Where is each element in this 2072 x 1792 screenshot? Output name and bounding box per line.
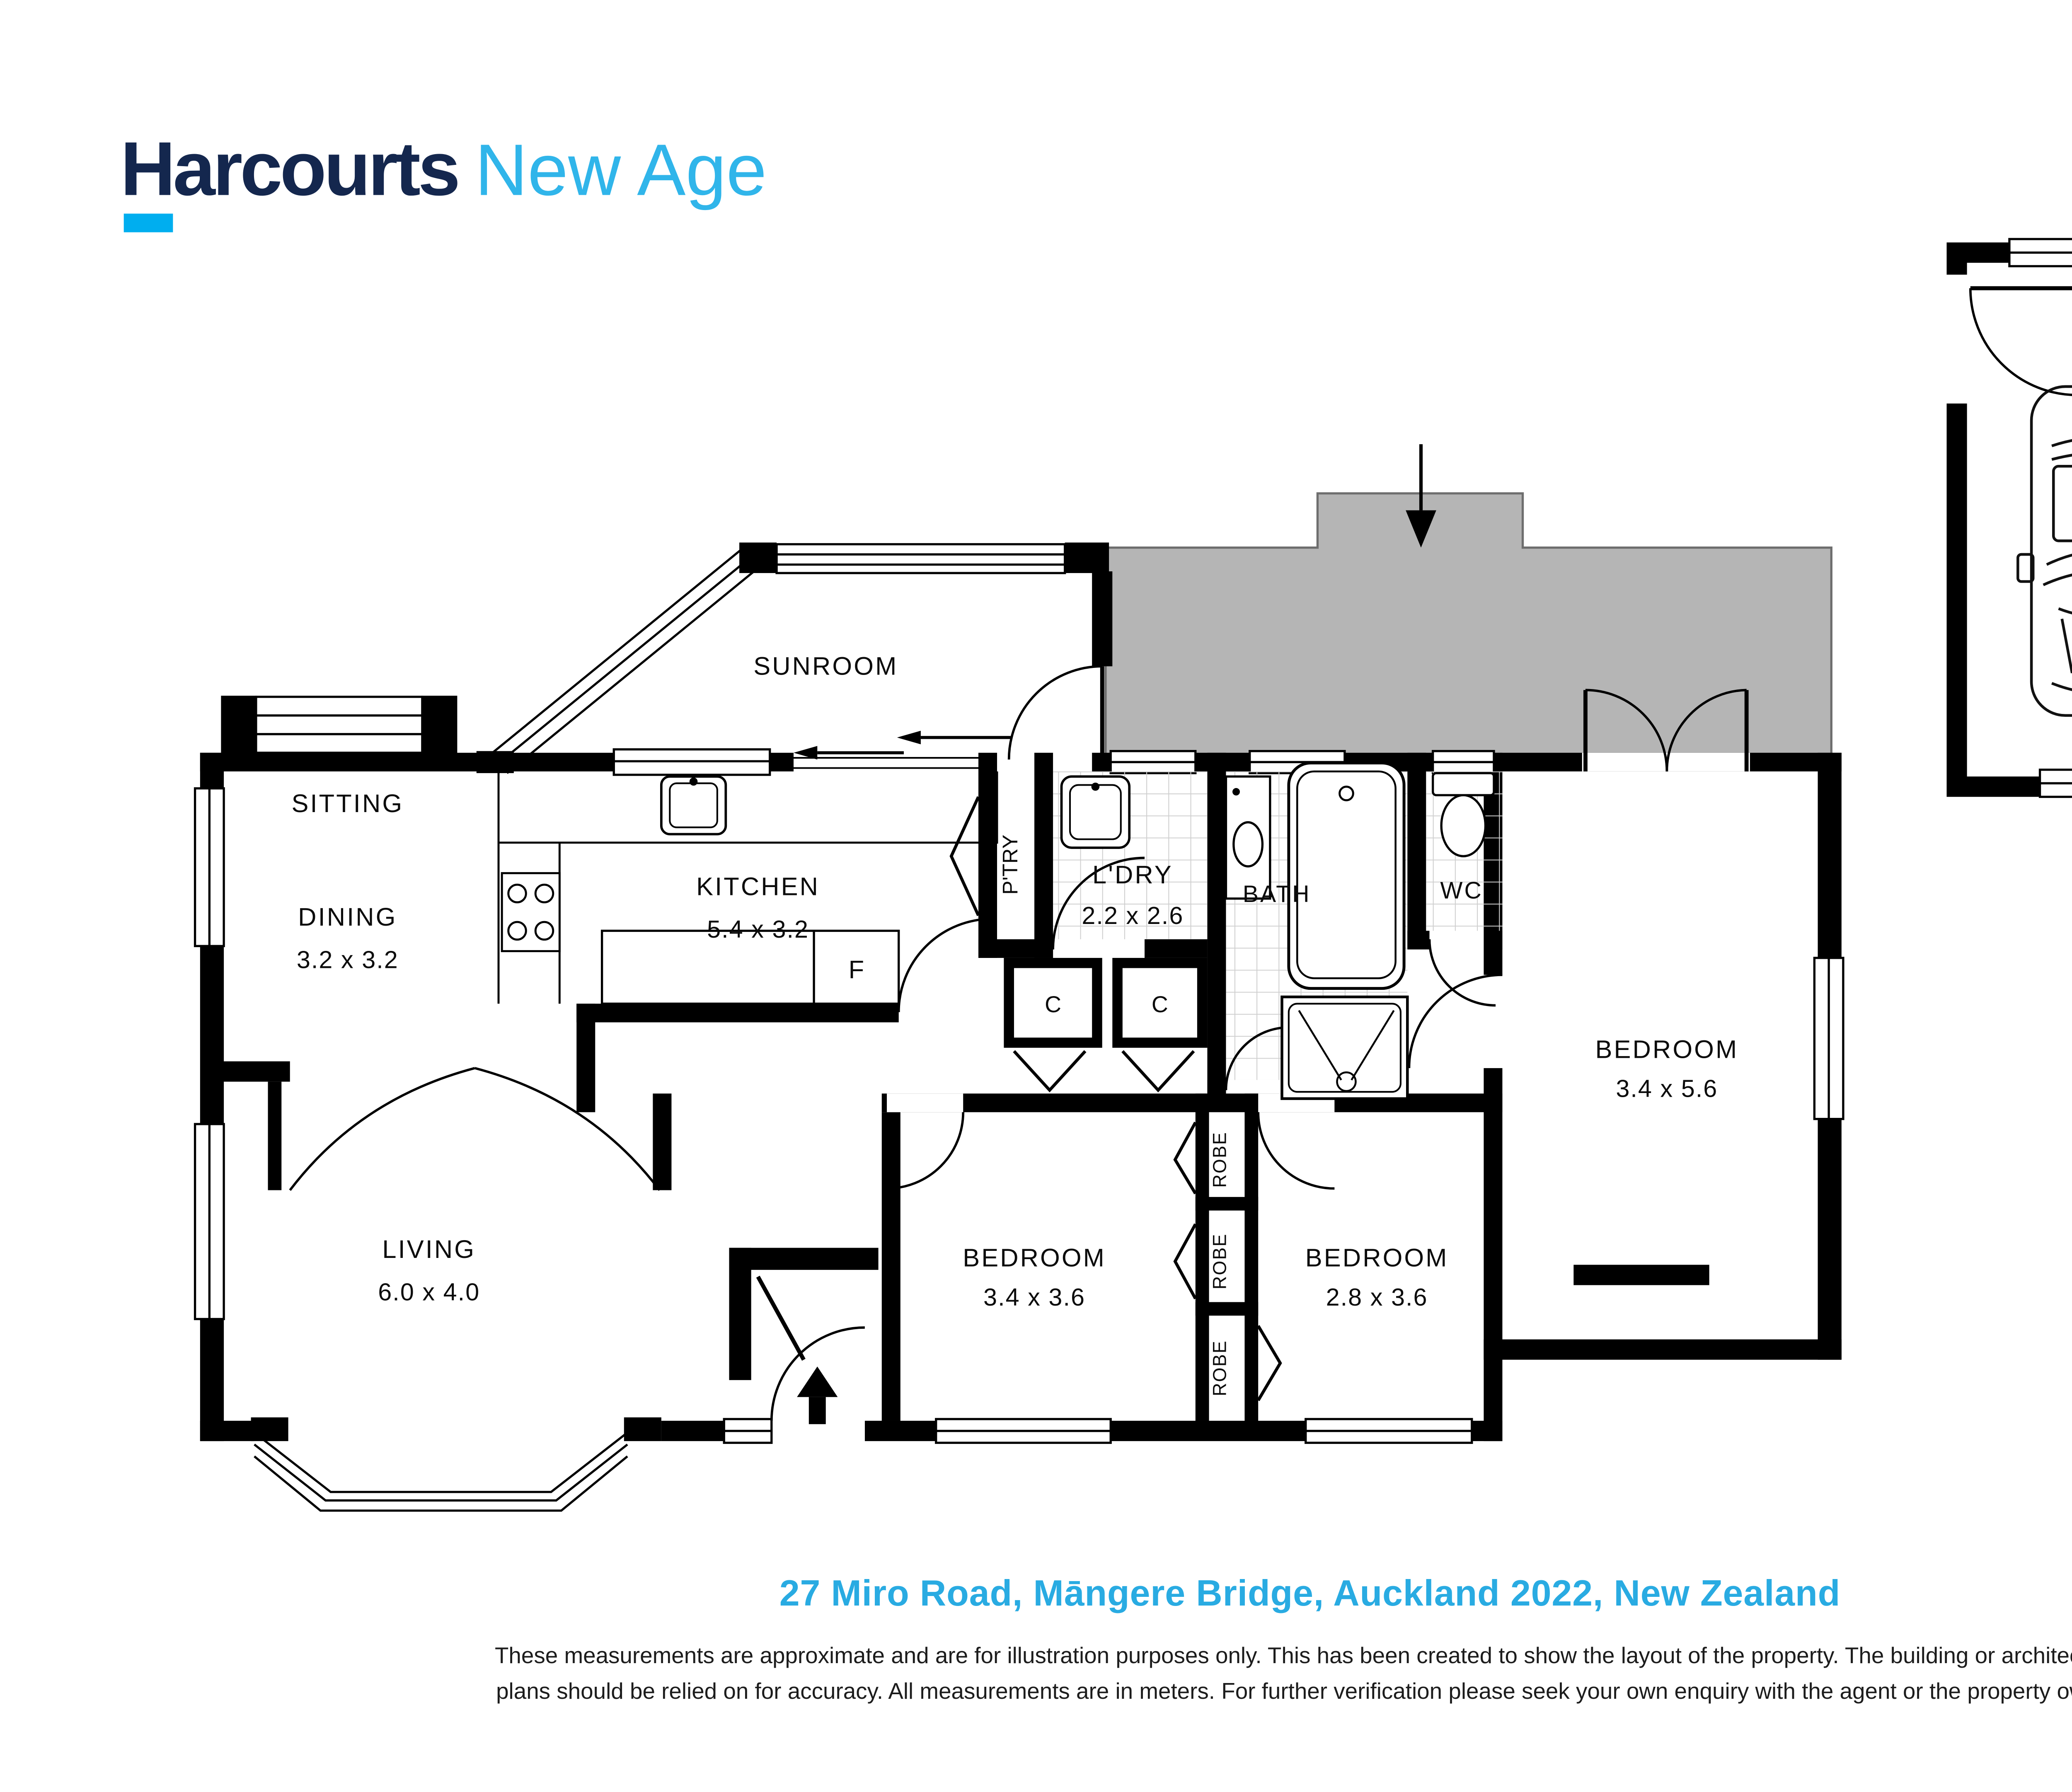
- sitting-label: SITTING: [292, 789, 404, 818]
- pantry-label: P'TRY: [998, 834, 1022, 895]
- bedroom-right-door: [1258, 1112, 1334, 1188]
- property-address: 27 Miro Road, Māngere Bridge, Auckland 2…: [0, 1573, 2072, 1615]
- wc-window: [1433, 751, 1494, 773]
- garage-bottom-window: [2040, 770, 2072, 797]
- disclaimer-line-2: plans should be relied on for accuracy. …: [0, 1674, 2072, 1710]
- shower-icon: [1282, 997, 1407, 1099]
- vanity-basin-icon: [1226, 776, 1270, 899]
- sunroom-top-window: [777, 544, 1065, 573]
- bedroom-rear-label: BEDROOM: [1595, 1035, 1738, 1064]
- kitchen-dims: 5.4 x 3.2: [707, 915, 809, 943]
- robe-bifold-door: [1175, 1122, 1196, 1194]
- disclaimer: These measurements are approximate and a…: [0, 1638, 2072, 1710]
- bedroom-left-window: [936, 1419, 1111, 1443]
- robe-bifold-door: [1258, 1326, 1280, 1400]
- kitchen-label: KITCHEN: [696, 873, 820, 901]
- living-side-window: [195, 1124, 224, 1319]
- closet-bifold-door: [1014, 1051, 1085, 1090]
- robe-label: ROBE: [1209, 1132, 1230, 1188]
- closet-label: C: [1045, 992, 1061, 1017]
- dining-living-double-doors: [290, 1068, 660, 1190]
- sitting-bay-window: [222, 697, 456, 753]
- bedroom-rear-dims: 3.4 x 5.6: [1616, 1074, 1718, 1102]
- laundry-label: L'DRY: [1092, 861, 1173, 889]
- dining-label: DINING: [298, 903, 397, 931]
- bedroom-right-window: [1306, 1419, 1472, 1443]
- bedroom-rear-door: [1409, 975, 1502, 1068]
- dining-dims: 3.2 x 3.2: [297, 946, 399, 973]
- closet-bifold-door: [1123, 1051, 1194, 1090]
- bedroom-right-label: BEDROOM: [1305, 1244, 1449, 1272]
- robe-bifold-door: [1175, 1224, 1196, 1299]
- fridge-label: F: [849, 955, 864, 984]
- sunroom-angled-window: [488, 544, 766, 773]
- robe-label: ROBE: [1209, 1233, 1230, 1290]
- wardrobe-icon: [1573, 1265, 1709, 1285]
- living-bay-window: [254, 1433, 627, 1511]
- entry-arrow-icon: [797, 1366, 838, 1424]
- page: HarcourtsNew Age: [0, 0, 2072, 1792]
- kitchen-window: [614, 750, 770, 775]
- robe-label: ROBE: [1209, 1340, 1230, 1396]
- wc-label: WC: [1440, 878, 1483, 904]
- bathtub-icon: [1289, 763, 1404, 988]
- sitting-side-window: [195, 788, 224, 946]
- pantry-bifold-door: [951, 797, 978, 915]
- laundry-sink-icon: [1062, 776, 1130, 848]
- porch-window: [724, 1419, 772, 1443]
- laundry-window: [1111, 751, 1196, 773]
- closets: [1004, 958, 1207, 1048]
- closet-label: C: [1152, 992, 1168, 1017]
- floor-plan: GARAGE 5.4 x 5.8 SUNROOM SITTING DINING …: [0, 0, 2072, 1792]
- bedroom-left-dims: 3.4 x 3.6: [983, 1283, 1085, 1311]
- stove-icon: [502, 873, 559, 951]
- bedroom-right-dims: 2.8 x 3.6: [1326, 1283, 1428, 1311]
- kitchen-hall-door: [899, 919, 992, 1012]
- living-label: LIVING: [382, 1235, 476, 1264]
- living-dims: 6.0 x 4.0: [378, 1278, 480, 1306]
- bedroom-rear-window: [1814, 958, 1843, 1119]
- deck: [1106, 444, 1831, 763]
- disclaimer-line-1: These measurements are approximate and a…: [0, 1638, 2072, 1674]
- kitchen-sink-icon: [661, 776, 726, 834]
- laundry-dims: 2.2 x 2.6: [1082, 902, 1184, 929]
- bath-label: BATH: [1243, 881, 1311, 907]
- sunroom-label: SUNROOM: [753, 652, 898, 681]
- garage: [1943, 239, 2072, 797]
- garage-top-window-left: [2009, 239, 2072, 266]
- sunroom-door: [1009, 666, 1102, 759]
- sliding-door-arrows-icon: [794, 731, 1011, 768]
- bedroom-left-label: BEDROOM: [963, 1244, 1106, 1272]
